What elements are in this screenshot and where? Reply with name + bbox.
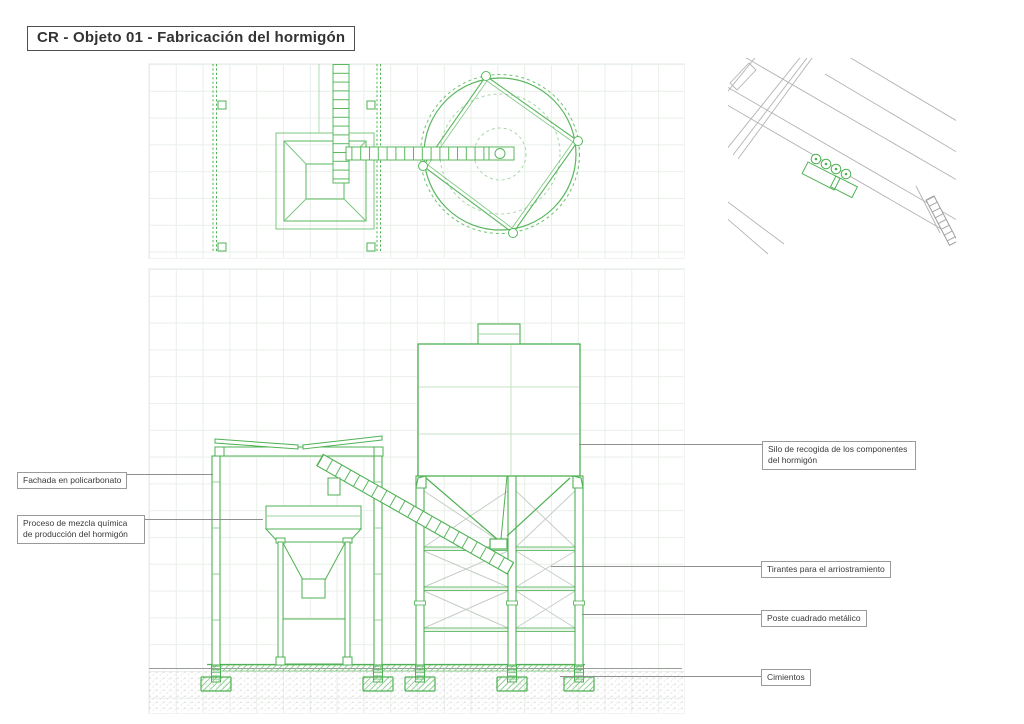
floor-slab <box>213 665 581 671</box>
conveyor-chute <box>328 478 340 495</box>
callout-silo: Silo de recogida de los componentes del … <box>762 441 916 470</box>
map-roads <box>728 58 956 254</box>
sheet-title: CR - Objeto 01 - Fabricación del hormigó… <box>27 26 355 51</box>
drawing-sheet: { "title": "CR - Objeto 01 - Fabricación… <box>0 0 1024 724</box>
leader-line-tirantes <box>551 566 761 567</box>
leader-line-poste <box>582 614 761 615</box>
leader-line-cimientos <box>560 676 761 677</box>
leader-line-proceso <box>130 519 263 520</box>
leader-line-fachada <box>116 474 213 475</box>
site-map-area <box>728 58 956 258</box>
callout-proceso: Proceso de mezcla química de producción … <box>17 515 145 544</box>
mixer-unit <box>266 506 361 665</box>
silo-body <box>418 324 580 476</box>
leader-line-silo <box>579 444 762 445</box>
callout-cimientos: Cimientos <box>761 669 811 686</box>
plan-vertical-conveyor <box>333 64 349 183</box>
plan-horizontal-conveyor <box>346 147 514 160</box>
silo-columns <box>415 476 585 665</box>
map-object-highlight <box>802 154 857 197</box>
plan-view-area <box>148 63 685 259</box>
site-map-drawing <box>728 58 956 258</box>
elevation-drawing <box>149 269 684 713</box>
callout-fachada: Fachada en policarbonato <box>17 472 127 489</box>
callout-poste: Poste cuadrado metálico <box>761 610 867 627</box>
callout-tirantes: Tirantes para el arriostramiento <box>761 561 891 578</box>
plan-wall-left <box>213 64 226 252</box>
map-bridge <box>926 196 956 245</box>
elevation-view-area <box>148 268 685 714</box>
plan-view-drawing <box>149 64 684 258</box>
